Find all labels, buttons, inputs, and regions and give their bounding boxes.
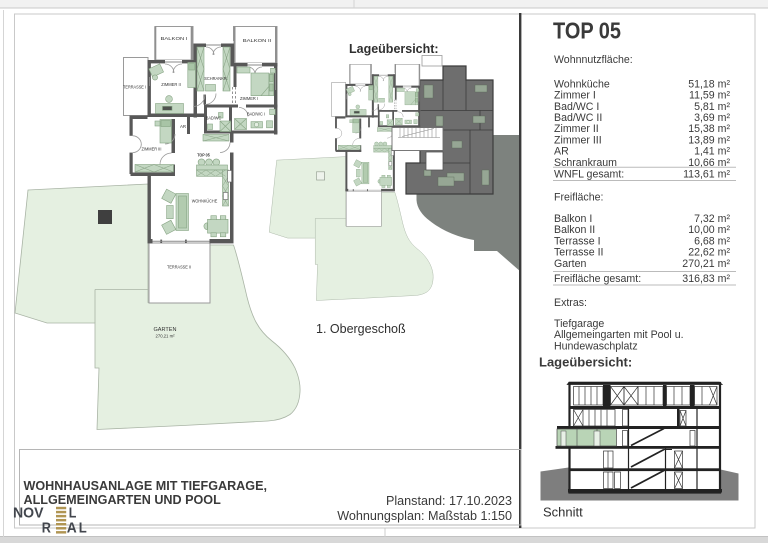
svg-text:270,21 m²: 270,21 m² [156,334,176,339]
svg-text:270,21 m²: 270,21 m² [682,258,730,270]
svg-text:13,89 m²: 13,89 m² [688,134,730,146]
svg-text:BALKON I: BALKON I [161,36,188,41]
svg-text:SCHRANKR.: SCHRANKR. [204,76,228,81]
svg-text:R: R [42,520,52,536]
svg-text:ALLGEMEINGARTEN UND POOL: ALLGEMEINGARTEN UND POOL [24,493,222,507]
svg-text:Lageübersicht:: Lageübersicht: [349,42,439,56]
svg-text:WNFL gesamt:: WNFL gesamt: [554,169,624,181]
svg-text:Bad/WC II: Bad/WC II [554,112,602,124]
svg-text:Extras:: Extras: [554,297,587,309]
svg-text:Zimmer II: Zimmer II [554,123,599,135]
svg-text:ZIMMER III: ZIMMER III [142,147,162,152]
svg-text:L: L [69,505,77,521]
svg-text:Bad/WC I: Bad/WC I [554,101,599,113]
svg-text:Wohnnutzfläche:: Wohnnutzfläche: [554,54,633,66]
svg-text:Balkon I: Balkon I [554,213,592,225]
svg-text:1,41 m²: 1,41 m² [694,146,730,158]
svg-text:Zimmer I: Zimmer I [554,90,596,102]
svg-text:TERRASSE II: TERRASSE II [167,265,191,270]
svg-text:Hundewaschplatz: Hundewaschplatz [554,340,638,352]
svg-text:Allgemeingarten mit Pool u.: Allgemeingarten mit Pool u. [554,329,684,341]
svg-text:Wohnungsplan: Maßstab 1:150: Wohnungsplan: Maßstab 1:150 [337,509,512,523]
svg-text:113,61 m²: 113,61 m² [683,169,730,181]
svg-text:Freifläche gesamt:: Freifläche gesamt: [554,273,641,285]
svg-text:Freifläche:: Freifläche: [554,192,603,204]
svg-text:BAD/WC I: BAD/WC I [247,112,265,117]
svg-text:5,81 m²: 5,81 m² [694,101,730,113]
svg-text:6,68 m²: 6,68 m² [694,235,730,247]
svg-text:Balkon II: Balkon II [554,224,595,236]
svg-text:TERRASSE I: TERRASSE I [123,85,146,90]
svg-text:TOP 05: TOP 05 [197,153,210,159]
svg-text:WOHNHAUSANLAGE MIT TIEFGARAGE,: WOHNHAUSANLAGE MIT TIEFGARAGE, [24,479,267,493]
svg-text:L: L [79,520,87,536]
svg-text:316,83 m²: 316,83 m² [682,273,730,285]
svg-text:1. Obergeschoß: 1. Obergeschoß [316,322,406,336]
svg-text:A: A [67,520,77,536]
svg-text:7,32 m²: 7,32 m² [694,213,730,225]
svg-text:ZIMMER I: ZIMMER I [240,96,258,101]
svg-text:Lageübersicht:: Lageübersicht: [539,355,632,370]
svg-text:BAD/WC: BAD/WC [206,116,222,121]
svg-text:BALKON II: BALKON II [243,38,272,43]
svg-text:AR: AR [554,146,569,158]
svg-text:Planstand: 17.10.2023: Planstand: 17.10.2023 [386,494,512,508]
svg-text:10,00 m²: 10,00 m² [688,224,730,236]
svg-text:AR: AR [180,124,186,129]
svg-text:Zimmer III: Zimmer III [554,134,602,146]
svg-text:Terrasse I: Terrasse I [554,235,601,247]
svg-text:ZIMMER II: ZIMMER II [161,82,181,87]
svg-text:GARTEN: GARTEN [154,327,177,333]
svg-text:NOV: NOV [13,505,44,521]
svg-text:WOHNKÜCHE: WOHNKÜCHE [192,199,218,204]
svg-text:3,69 m²: 3,69 m² [694,112,730,124]
svg-text:11,59 m²: 11,59 m² [689,90,730,102]
svg-text:22,62 m²: 22,62 m² [688,247,730,259]
svg-text:15,38 m²: 15,38 m² [688,123,730,135]
svg-text:Schnitt: Schnitt [543,505,583,520]
svg-text:Tiefgarage: Tiefgarage [554,318,604,330]
svg-text:TOP 05: TOP 05 [553,18,621,44]
svg-text:Terrasse II: Terrasse II [554,247,603,259]
svg-text:Garten: Garten [554,258,586,270]
